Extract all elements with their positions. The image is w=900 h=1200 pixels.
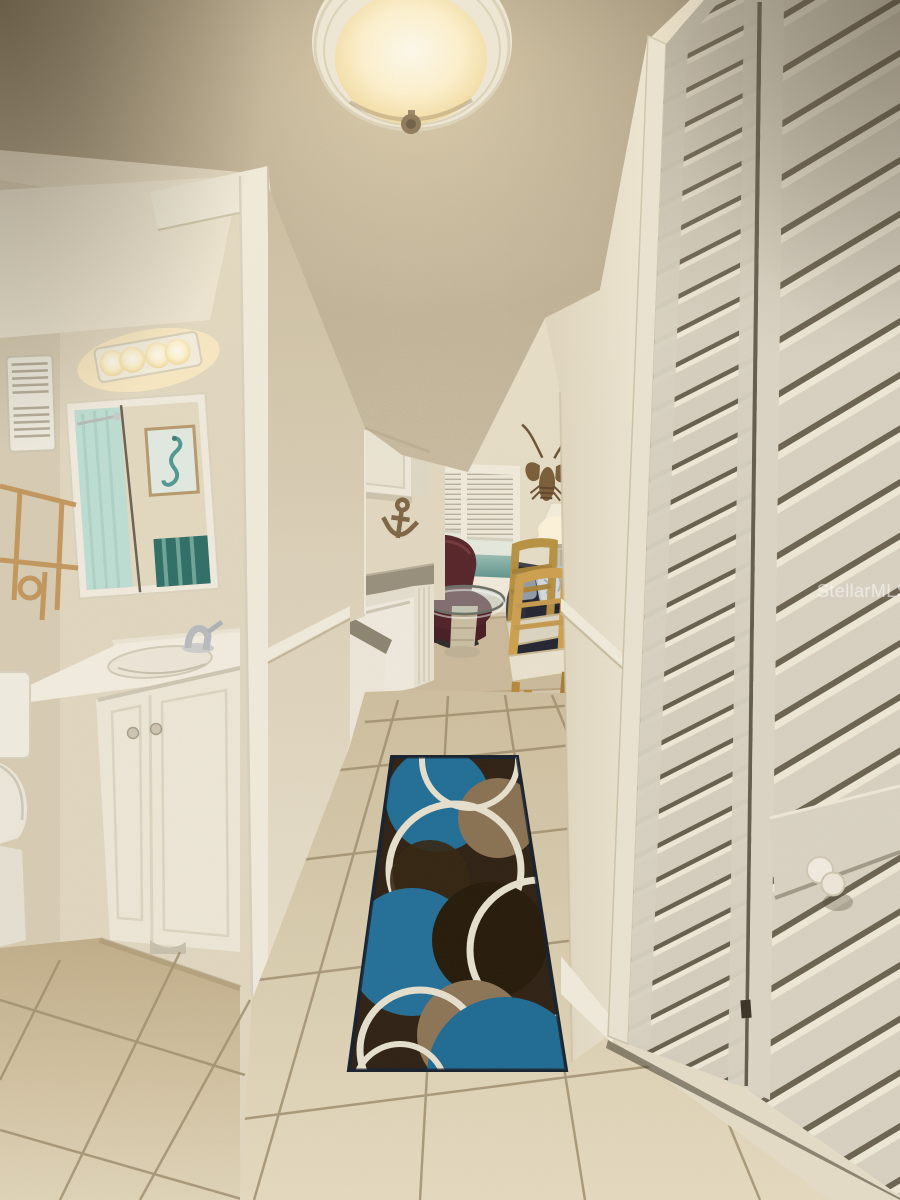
property-photo: StellarMLS: [0, 0, 900, 1200]
wall-heater: [6, 355, 55, 452]
cabinet-knob: [151, 724, 162, 735]
seahorse-art-reflection: [146, 426, 198, 495]
photo-canvas: [0, 0, 900, 1200]
bathroom: [0, 150, 256, 1200]
window-blinds-right: [467, 473, 513, 540]
medicine-cabinet-mirror: [66, 393, 219, 598]
door-hinge: [740, 1000, 751, 1019]
cabinet-knob: [128, 728, 139, 739]
kitchen-end-panel: [414, 584, 434, 688]
bathroom-floor: [0, 938, 250, 1200]
closet-door-right-panel: [748, 0, 900, 1196]
louvered-closet-doors: [606, 0, 900, 1200]
